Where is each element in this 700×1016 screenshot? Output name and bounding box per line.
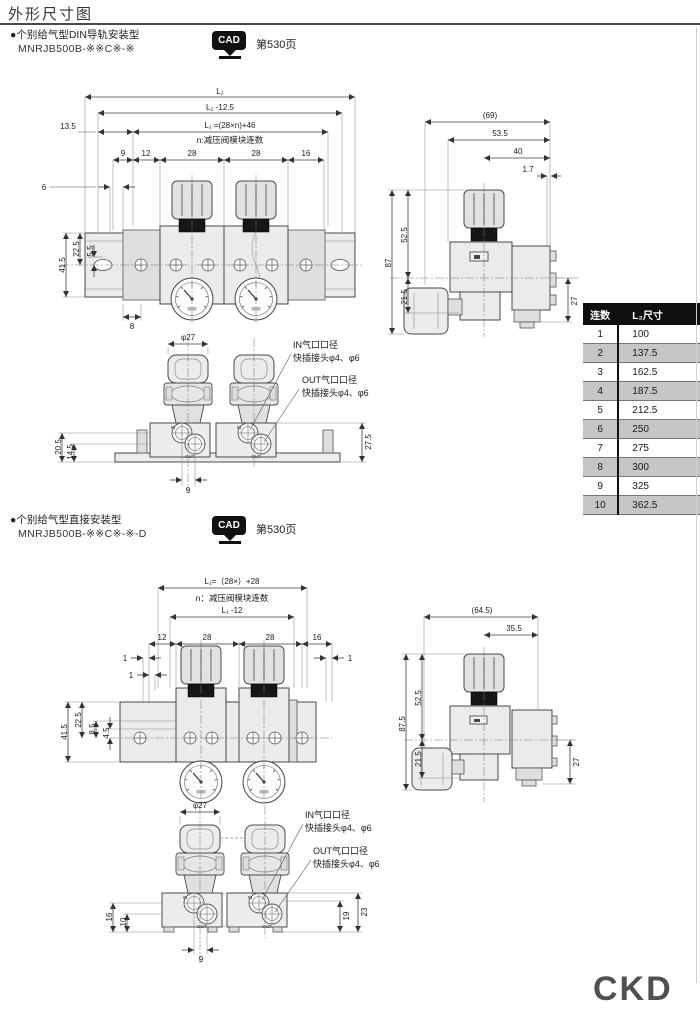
spec-table: 连数 L₂尺寸 1100 2137.5 3162.5 4187.5 5212.5…: [583, 303, 700, 515]
bottom-view-direct-mount: IN OUT IN OUT φ27 16 10 9 1: [95, 798, 430, 983]
port-in-label-1: IN: [171, 425, 176, 430]
section2-model: MNRJB500B-※※C※-※-D: [18, 528, 147, 540]
dim-13-5: 13.5: [60, 122, 76, 131]
dim-22-5: 22.5: [74, 712, 83, 728]
dim-52-5: 52.5: [400, 227, 409, 243]
dim-22-5: 22.5: [72, 241, 81, 257]
table-row: 9325: [583, 477, 700, 496]
dim-27: 27: [570, 296, 579, 305]
bottom-view-din-rail: IN OUT IN OUT φ27 20.5 14.5 9 27.5: [40, 330, 400, 505]
table-row: 4187.5: [583, 382, 700, 401]
mount-block: [512, 710, 552, 768]
din-rail-assembly: [60, 175, 362, 325]
in-callout-line1: IN气口口径: [293, 339, 338, 350]
cad-base: [219, 541, 241, 544]
cad-screen: CAD: [212, 31, 246, 50]
cad-monitor-icon: CAD: [212, 516, 248, 544]
port-out-label-2: OUT: [262, 924, 272, 929]
out-callout-line2: 快插接头φ4、φ6: [302, 387, 369, 398]
table-row: 5212.5: [583, 401, 700, 420]
cad-page-ref: 第530页: [256, 36, 296, 52]
module-2-bottom: [227, 825, 289, 927]
in-callout-line2: 快插接头φ4、φ6: [293, 352, 360, 363]
bottom2-body: IN OUT IN OUT: [162, 806, 289, 963]
dim-1-7: 1.7: [522, 165, 534, 174]
dim-l2-minus: L₂ -12.5: [206, 103, 235, 112]
page-title: 外形尺寸图: [8, 3, 93, 24]
page-edge-line: [696, 28, 697, 983]
dim-21-5: 21.5: [400, 289, 409, 305]
dim-10: 10: [119, 917, 128, 926]
dim-9: 9: [199, 955, 204, 964]
dim-8-5: 8.5: [88, 723, 97, 735]
dim-53-5: 53.5: [492, 129, 508, 138]
dim-16: 16: [302, 149, 311, 158]
cad-page-ref: 第530页: [256, 521, 296, 537]
dim-52-5: 52.5: [414, 690, 423, 706]
dim-l1: L₁=（28×）+28: [205, 577, 261, 586]
side-view-din-rail: (69) 53.5 40 1.7 87 52.5 21.5 27: [378, 105, 583, 340]
table-row: 6250: [583, 420, 700, 439]
catalog-page: 外形尺寸图 ●个别给气型DIN导轨安装型 MNRJB500B-※※C※-※ CA…: [0, 0, 700, 1016]
dim-19: 19: [342, 911, 351, 920]
dim-l1: L₁ =(28×n)+46: [205, 121, 257, 130]
table-row: 7275: [583, 439, 700, 458]
section1-heading: ●个别给气型DIN导轨安装型: [10, 27, 139, 42]
dim-28a: 28: [188, 149, 197, 158]
dim-20-5: 20.5: [54, 439, 63, 455]
side-view-direct-mount: (64.5) 35.5 87.5 52.5 21.5 27: [398, 602, 603, 817]
dim-28b: 28: [266, 633, 275, 642]
dim-35-5: 35.5: [506, 624, 522, 633]
col-header-count: 连数: [583, 303, 618, 325]
dim-41-5: 41.5: [58, 257, 67, 273]
module-2-bottom: [216, 355, 278, 457]
dim-87-5: 87.5: [398, 716, 407, 732]
dim-9: 9: [186, 486, 191, 495]
in-callout-line2: 快插接头φ4、φ6: [305, 822, 372, 833]
bottom1-dimensions: φ27 20.5 14.5 9 27.5 IN气口口径 快插接头φ4、φ6 OU…: [54, 333, 373, 495]
front-view-direct-mount: L₁=（28×）+28 n：减压阀模块连数 L₁ -12 12 28 28 16…: [40, 568, 390, 808]
table-row: 2137.5: [583, 344, 700, 363]
cad-link-1: CAD 第530页: [212, 31, 296, 59]
dim-5-5: 5.5: [86, 245, 95, 257]
table-row: 3162.5: [583, 363, 700, 382]
module-1-bottom: [150, 355, 212, 457]
front-view-din-rail: L₂ L₂ -12.5 13.5 L₁ =(28×n)+46 n:减压阀模块连数…: [30, 85, 365, 340]
dim-1a: 1: [123, 654, 128, 663]
ckd-logo: CKD: [593, 970, 673, 1009]
cad-link-2: CAD 第530页: [212, 516, 296, 544]
col-header-l2: L₂尺寸: [618, 303, 700, 325]
dim-69: (69): [483, 111, 498, 120]
dim-64-5: (64.5): [472, 606, 493, 615]
section2-heading: ●个别给气型直接安装型: [10, 512, 121, 527]
dim-23: 23: [360, 907, 369, 916]
side2-body: [404, 647, 574, 802]
table-header-row: 连数 L₂尺寸: [583, 303, 700, 325]
port-in-label-2: IN: [248, 895, 253, 900]
dim-21-5: 21.5: [414, 751, 423, 767]
dim-phi27: φ27: [193, 801, 208, 810]
dim-phi27: φ27: [181, 333, 196, 342]
dim-41-5: 41.5: [60, 724, 69, 740]
gauge-side-block: [404, 288, 448, 334]
port-out-label-1: OUT: [197, 924, 207, 929]
dim-6: 6: [42, 183, 47, 192]
dim-12: 12: [158, 633, 167, 642]
dim-14-5: 14.5: [66, 444, 75, 460]
table-row: 8300: [583, 458, 700, 477]
table-row: 1100: [583, 325, 700, 344]
dim-27-5: 27.5: [364, 434, 373, 450]
section1-model: MNRJB500B-※※C※-※: [18, 43, 135, 55]
dim-12: 12: [142, 149, 151, 158]
dim-4-5: 4.5: [102, 727, 111, 739]
port-out-label-2: OUT: [251, 454, 261, 459]
dim-l1-note: n:减压阀模块连数: [197, 135, 264, 145]
module-1-bottom: [162, 825, 224, 927]
dim-27: 27: [572, 757, 581, 766]
in-callout-line1: IN气口口径: [305, 809, 350, 820]
table-row: 10362.5: [583, 496, 700, 515]
dim-9: 9: [121, 149, 126, 158]
dim-40: 40: [514, 147, 523, 156]
dim-28a: 28: [203, 633, 212, 642]
port-in-label-2: IN: [237, 425, 242, 430]
out-callout-line1: OUT气口口径: [302, 374, 357, 385]
dim-1b: 1: [129, 671, 134, 680]
out-callout-line2: 快插接头φ4、φ6: [313, 858, 380, 869]
dim-28b: 28: [252, 149, 261, 158]
cad-screen: CAD: [212, 516, 246, 535]
out-callout-line1: OUT气口口径: [313, 845, 368, 856]
port-out-label-1: OUT: [185, 454, 195, 459]
cad-base: [219, 56, 241, 59]
dim-16: 16: [313, 633, 322, 642]
cad-monitor-icon: CAD: [212, 31, 248, 59]
front2-body: [110, 640, 332, 806]
bottom2-dimensions: φ27 16 10 9 19 23 IN气口口径 快插接头φ4、φ6 OUT气口…: [105, 801, 380, 964]
dim-87: 87: [384, 258, 393, 267]
dim-l1-minus: L₁ -12: [222, 606, 243, 615]
dim-16: 16: [105, 912, 114, 921]
port-in-label-1: IN: [183, 895, 188, 900]
dim-l2: L₂: [216, 87, 224, 96]
dim-l1-note: n：减压阀模块连数: [196, 593, 269, 603]
title-rule: [0, 23, 700, 25]
dim-1c: 1: [348, 654, 353, 663]
